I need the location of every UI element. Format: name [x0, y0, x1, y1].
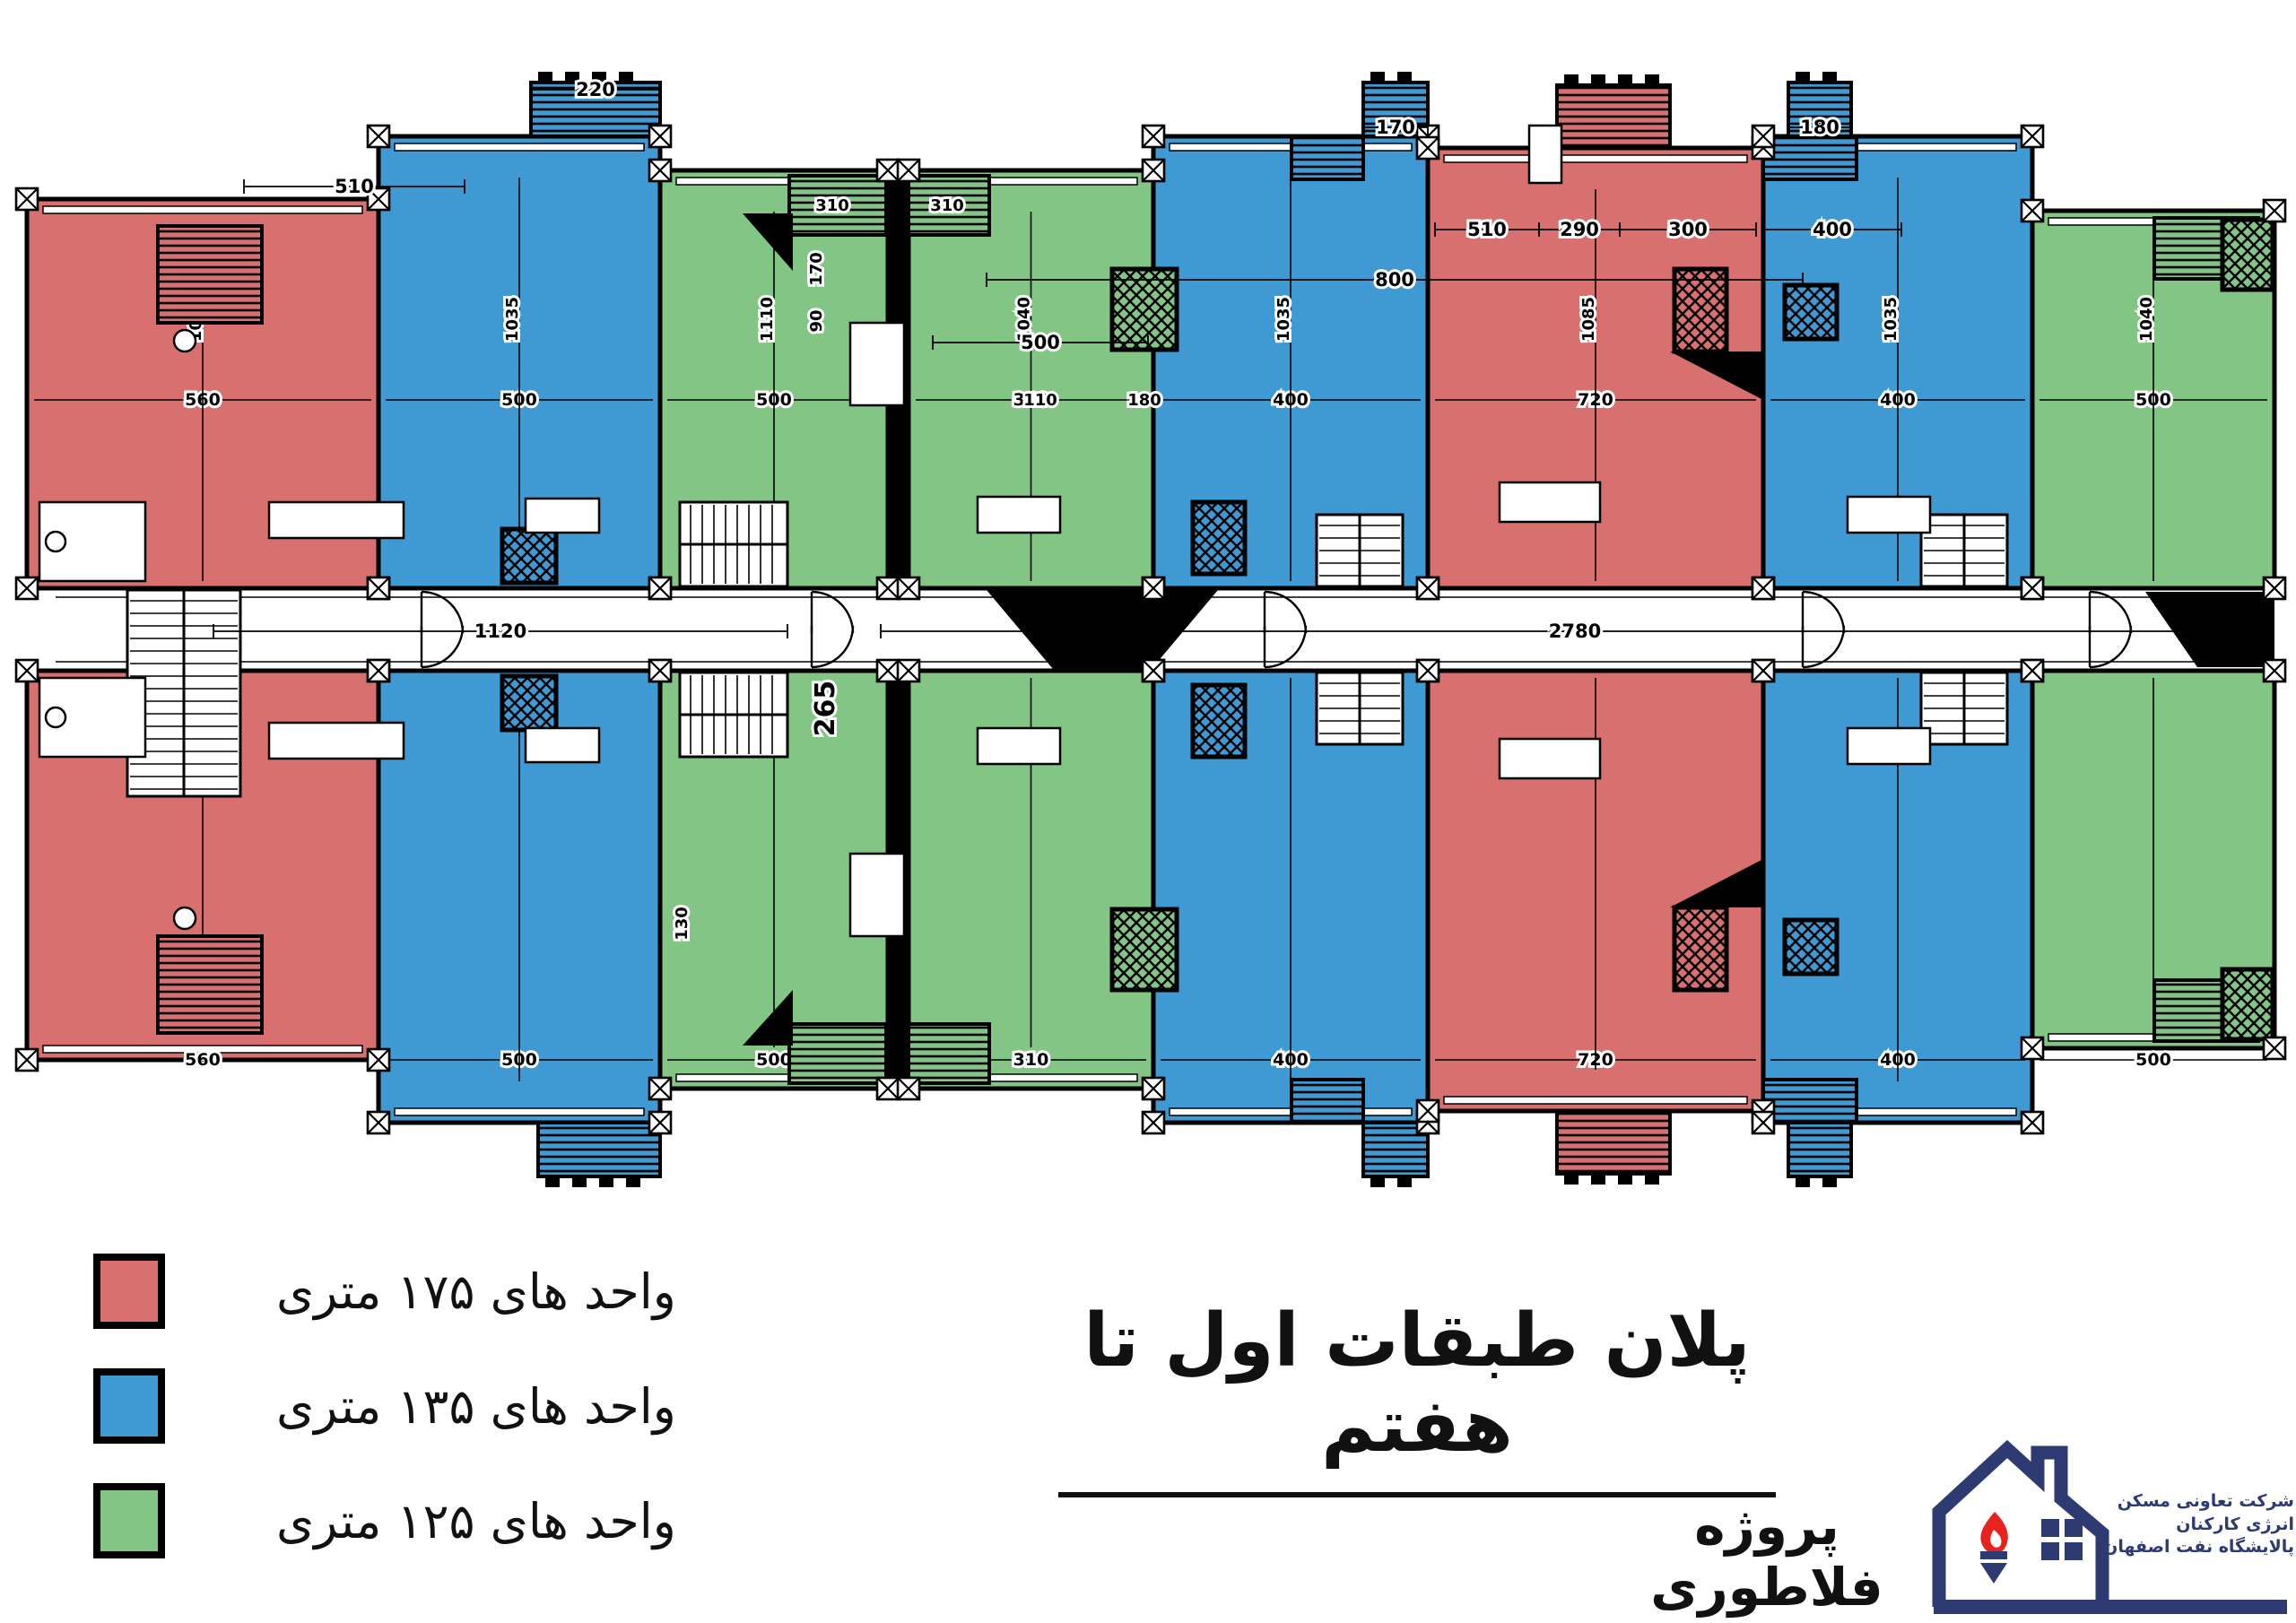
dimension-label: 90: [807, 309, 826, 332]
crenellation-tooth: [1796, 1176, 1810, 1187]
dimension-label: 1035: [1274, 297, 1293, 342]
crenellation-tooth: [1564, 74, 1578, 85]
legend: واحد های ۱۷۵ متری واحد های ۱۳۵ متری واحد…: [93, 1254, 676, 1598]
legend-row-unit-125: واحد های ۱۲۵ متری: [93, 1483, 676, 1558]
fixture: [1848, 497, 1930, 533]
balcony-hatch: [1788, 1123, 1851, 1176]
balcony-hatch: [538, 1123, 660, 1176]
fixture: [526, 728, 599, 762]
door-arc: [2090, 626, 2131, 667]
door-arc: [1803, 626, 1844, 667]
dimension-label: 800: [1375, 269, 1414, 291]
door-arc: [422, 626, 463, 667]
balcony-hatch: [909, 1024, 989, 1083]
crenellation-tooth: [1645, 74, 1659, 85]
dimension-label: 1085: [1579, 297, 1598, 342]
dimension-label: 110: [1023, 391, 1057, 410]
window-slit: [43, 206, 362, 213]
dimension-label: 2780: [1549, 621, 1601, 642]
door-arc: [1265, 626, 1306, 667]
crenellation-tooth: [599, 1176, 613, 1187]
crenellation-tooth: [1370, 72, 1385, 82]
dimension-label: 310: [930, 196, 964, 215]
void-wedge: [2145, 592, 2274, 667]
fixture: [978, 728, 1060, 764]
balcony-hatch: [1763, 1080, 1857, 1123]
crenellation-tooth: [1591, 1174, 1605, 1185]
door-arc: [812, 592, 853, 633]
dimension-label: 500: [2135, 1050, 2171, 1070]
dimension-label: 180: [1127, 391, 1161, 410]
void-wedge: [987, 590, 1218, 669]
bathroom-hatch: [1112, 909, 1177, 990]
window-slit: [1444, 1097, 1747, 1104]
dimension-label: 265: [810, 681, 841, 737]
crenellation-tooth: [1370, 1176, 1385, 1187]
door-arc: [812, 626, 853, 667]
door-arc: [1265, 592, 1306, 633]
legend-swatch-blue: [93, 1368, 165, 1444]
legend-swatch-green: [93, 1483, 165, 1558]
dimension-label: 500: [1021, 332, 1060, 353]
legend-swatch-red: [93, 1254, 165, 1329]
dimension-label: 180: [1800, 117, 1839, 138]
fixture: [269, 502, 404, 538]
balcony-hatch: [1291, 1080, 1363, 1123]
dimension-label: 310: [1013, 1050, 1049, 1070]
crenellation-tooth: [1397, 72, 1412, 82]
dimension-label: 300: [1668, 219, 1708, 240]
fixture: [269, 723, 404, 759]
dimension-label: 1035: [1882, 297, 1900, 342]
crenellation-tooth: [545, 1176, 560, 1187]
dimension-label: 500: [756, 1050, 792, 1070]
bathroom-hatch: [2222, 969, 2273, 1039]
dimension-label: 310: [815, 196, 849, 215]
organization-name: شرکت تعاونی مسکن انرژی کارکنان پالایشگاه…: [2115, 1490, 2294, 1559]
fixture: [978, 497, 1060, 533]
crenellation-tooth: [1822, 1176, 1837, 1187]
bathroom-hatch: [2222, 220, 2273, 290]
dimension-label: 510: [1467, 219, 1507, 240]
crenellation-tooth: [619, 72, 633, 82]
dimension-label: 290: [1560, 219, 1599, 240]
bathroom-hatch: [1193, 685, 1245, 757]
org-line-2: انرژی کارکنان: [2115, 1514, 2294, 1537]
door-arc: [422, 592, 463, 633]
bathroom-hatch: [502, 529, 556, 583]
balcony-hatch: [158, 226, 262, 323]
legend-row-unit-135: واحد های ۱۳۵ متری: [93, 1368, 676, 1444]
dimension-label: 170: [807, 252, 826, 286]
bathroom-hatch: [1785, 920, 1837, 974]
plan-title: پلان طبقات اول تا هفتم: [1058, 1298, 1776, 1497]
balcony-hatch: [1557, 1111, 1670, 1174]
org-line-1: شرکت تعاونی مسکن: [2115, 1490, 2294, 1514]
balcony-hatch: [1291, 136, 1363, 179]
fixture: [850, 854, 904, 936]
crenellation-tooth: [626, 1176, 640, 1187]
dimension-label: 130: [673, 907, 691, 941]
fixture: [1500, 739, 1600, 778]
dimension-label: 220: [576, 79, 615, 100]
bathroom-hatch: [1674, 907, 1726, 990]
crenellation-tooth: [1564, 1174, 1578, 1185]
balcony-hatch: [1763, 136, 1857, 179]
crenellation-tooth: [1591, 74, 1605, 85]
bathroom-hatch: [1193, 502, 1245, 574]
bathroom-hatch: [1785, 285, 1837, 339]
page: 5605601000500500103550050011103103101040…: [0, 0, 2296, 1623]
crenellation-tooth: [572, 1176, 587, 1187]
door-arc: [2090, 592, 2131, 633]
dimension-label: 560: [185, 1050, 221, 1070]
fixture: [1848, 728, 1930, 764]
dimension-label: 510: [335, 176, 374, 197]
balcony-hatch: [1557, 85, 1670, 148]
legend-label-125: واحد های ۱۲۵ متری: [276, 1493, 676, 1549]
legend-row-unit-175: واحد های ۱۷۵ متری: [93, 1254, 676, 1329]
window-slit: [395, 143, 644, 151]
bathroom-hatch: [1112, 269, 1177, 350]
bathroom-hatch: [1674, 269, 1726, 352]
dimension-label: 1120: [474, 621, 526, 642]
crenellation-tooth: [1397, 1176, 1412, 1187]
crenellation-tooth: [538, 72, 552, 82]
crenellation-tooth: [1822, 72, 1837, 82]
project-name: پروژه فلاطوری: [1578, 1496, 1955, 1618]
legend-label-135: واحد های ۱۳۵ متری: [276, 1378, 676, 1435]
dimension-label: 170: [1376, 117, 1415, 138]
wc-fixture: [174, 330, 196, 352]
org-line-3: پالایشگاه نفت اصفهان: [2115, 1536, 2294, 1559]
dimension-label: 1110: [758, 297, 777, 342]
fixture: [1529, 126, 1561, 183]
dimension-label: 1035: [503, 297, 522, 342]
door-arc: [1803, 592, 1844, 633]
fixture: [850, 323, 904, 405]
wc-fixture: [46, 532, 65, 551]
crenellation-tooth: [1618, 74, 1632, 85]
window-slit: [395, 1108, 644, 1115]
crenellation-tooth: [1618, 1174, 1632, 1185]
balcony-hatch: [158, 936, 262, 1033]
wc-fixture: [174, 907, 196, 929]
dimension-label: 400: [1813, 219, 1852, 240]
crenellation-tooth: [1645, 1174, 1659, 1185]
legend-label-175: واحد های ۱۷۵ متری: [276, 1263, 676, 1320]
dimension-label: 1040: [2137, 297, 2156, 342]
balcony-hatch: [789, 1024, 886, 1083]
fixture: [1500, 482, 1600, 522]
floor-plan: 5605601000500500103550050011103103101040…: [16, 72, 2285, 1187]
bathroom-hatch: [502, 676, 556, 730]
crenellation-tooth: [1796, 72, 1810, 82]
fixture: [526, 499, 599, 533]
window-slit: [1444, 155, 1747, 162]
wc-fixture: [46, 707, 65, 727]
company-logo: شرکت تعاونی مسکن انرژی کارکنان پالایشگاه…: [1925, 1424, 2296, 1619]
